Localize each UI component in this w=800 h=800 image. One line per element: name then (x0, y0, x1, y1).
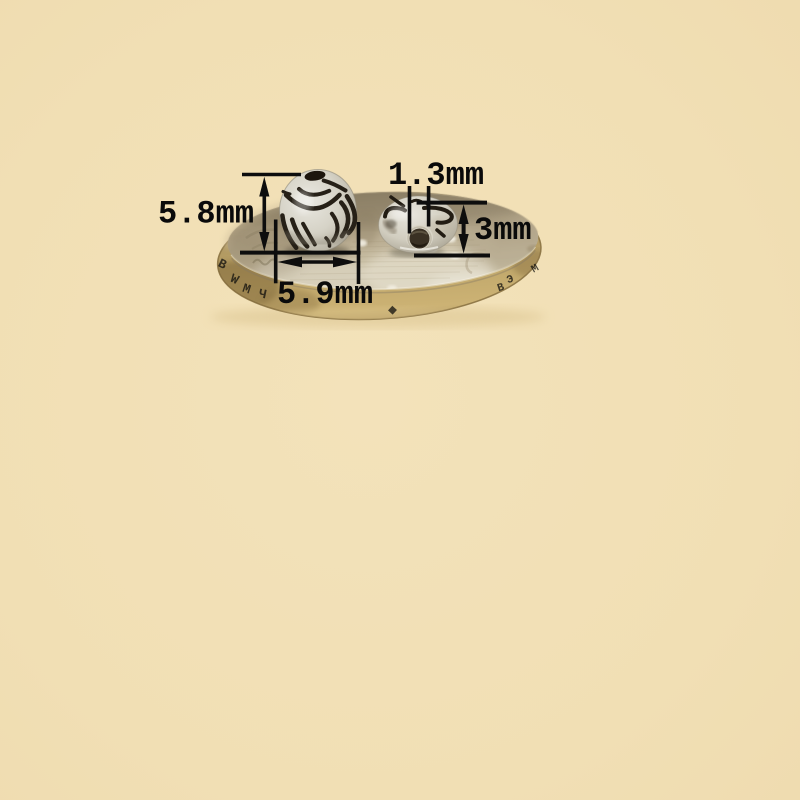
svg-text:5.8mm: 5.8mm (158, 196, 254, 233)
svg-text:1.3mm: 1.3mm (388, 157, 484, 194)
svg-text:3mm: 3mm (474, 212, 532, 249)
svg-text:5.9mm: 5.9mm (277, 276, 373, 313)
svg-text:◆: ◆ (388, 302, 398, 319)
